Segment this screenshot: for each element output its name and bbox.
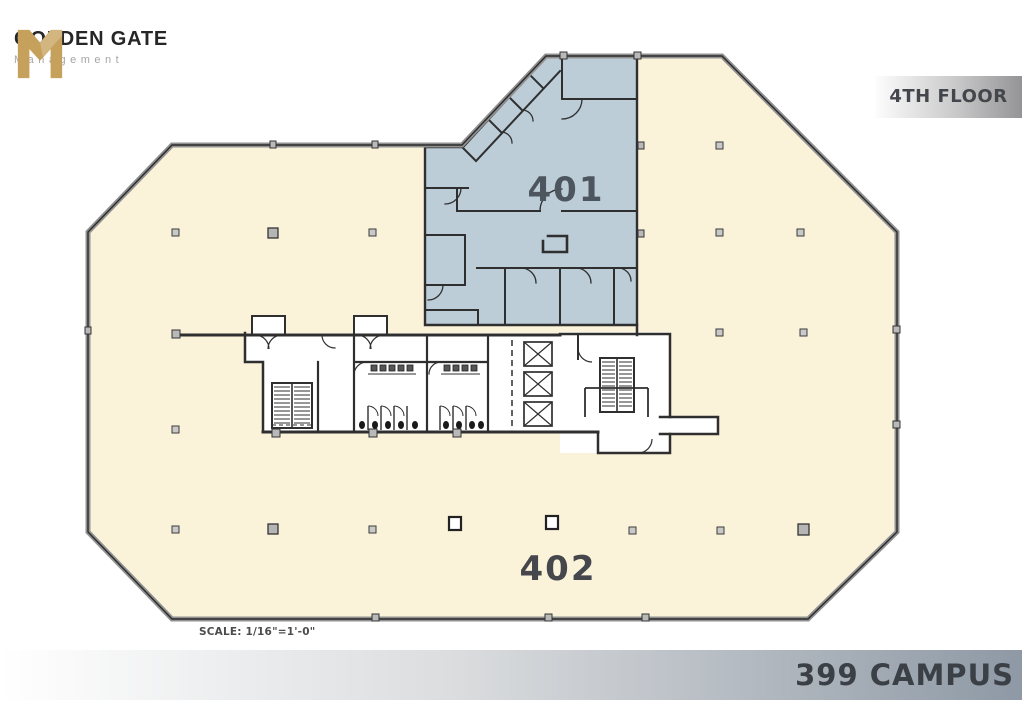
golden-gate-logo-icon	[14, 28, 66, 80]
building-name: 399 CAMPUS	[795, 650, 1014, 700]
company-logo: GOLDEN GATE Management	[14, 28, 168, 66]
suite-401-label: 401	[528, 170, 605, 210]
scale-note: SCALE: 1/16"=1'-0"	[199, 626, 315, 638]
building-name-bar: 399 CAMPUS	[0, 650, 1022, 700]
floor-label-badge: 4TH FLOOR	[875, 76, 1022, 118]
floor-plan-page: GOLDEN GATE Management 4TH FLOOR 401 402…	[0, 0, 1022, 718]
floor-plan-drawing	[0, 0, 1022, 718]
suite-402-label: 402	[520, 549, 597, 589]
